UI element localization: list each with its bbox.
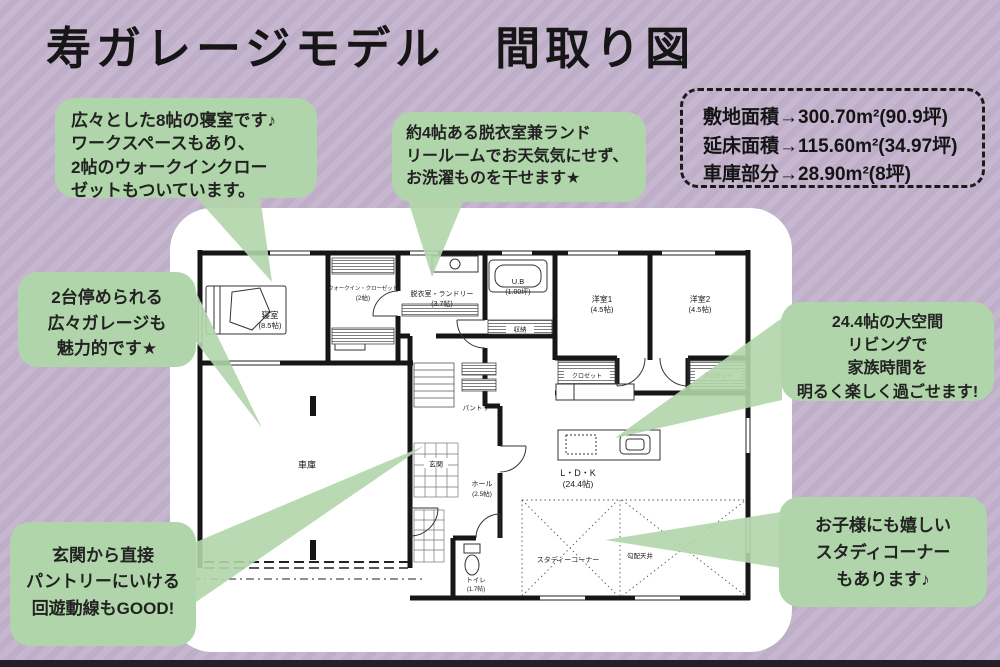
- label-closet-left: クロゼット: [572, 372, 602, 380]
- label-bedroom: 寝室: [261, 310, 279, 320]
- label-wic: ウォークイン・クローゼット: [328, 284, 398, 292]
- callout-line: スタディコーナー: [779, 539, 987, 566]
- callout-line: 2帖のウォークインクロー: [71, 156, 317, 179]
- label-bedroom-size: (8.5帖): [259, 320, 282, 330]
- garage-door-opening: [192, 562, 422, 579]
- page-title: 寿ガレージモデル 間取り図: [46, 12, 695, 77]
- callout-line: 回遊動線もGOOD!: [10, 596, 196, 622]
- callout-line: もあります♪: [779, 566, 987, 593]
- bottom-dark-strip: [0, 660, 1000, 667]
- study-callout: お子様にも嬉しい スタディコーナー もあります♪: [779, 497, 987, 607]
- floorplan-panel: 寝室 (8.5帖) ウォークイン・クローゼット (2帖) 脱衣室・ランドリー (…: [170, 208, 792, 652]
- label-toilet-size: (1.7帖): [467, 585, 485, 593]
- label-room1: 洋室1: [592, 294, 613, 304]
- callout-line: リールームでお天気気にせず、: [406, 146, 646, 169]
- bedroom-callout: 広々とした8帖の寝室です♪ ワークスペースもあり、 2帖のウォークインクロー ゼ…: [55, 98, 317, 198]
- callout-line: 明るく楽しく過ごせます!: [781, 381, 994, 404]
- area-info-box: 敷地面積→300.70m²(90.9坪) 延床面積→115.60m²(34.97…: [680, 88, 985, 188]
- garage-area: 車庫部分→28.90m²(8坪): [703, 161, 982, 190]
- label-room1-size: (4.5帖): [591, 304, 614, 314]
- label-laundry: 脱衣室・ランドリー: [411, 289, 474, 298]
- callout-line: 約4帖ある脱衣室兼ランド: [406, 123, 646, 146]
- callout-line: 2台停められる: [18, 285, 196, 311]
- living-callout: 24.4帖の大空間 リビングで 家族時間を 明るく楽しく過ごせます!: [781, 302, 994, 401]
- callout-line: 魅力的です★: [18, 336, 196, 362]
- entry-tiles: [414, 443, 458, 497]
- label-hall-size: (2.5帖): [472, 489, 492, 498]
- stairs: [414, 363, 454, 407]
- flyer-root: { "title": "寿ガレージモデル 間取り図", "area_info":…: [0, 0, 1000, 667]
- label-ldk-size: (24.4帖): [563, 479, 594, 489]
- label-storage: 収納: [514, 325, 527, 334]
- callout-line: リビングで: [781, 334, 994, 357]
- sloped-ceiling-lines: [522, 500, 746, 596]
- garage-post: [310, 396, 316, 416]
- label-wic-size: (2帖): [356, 293, 370, 302]
- callout-line: お洗濯ものを干せます★: [406, 168, 646, 191]
- label-ldk: L・D・K: [560, 468, 596, 478]
- laundry-callout: 約4帖ある脱衣室兼ランド リールームでお天気気にせず、 お洗濯ものを干せます★: [392, 112, 646, 202]
- floorplan-drawing: 寝室 (8.5帖) ウォークイン・クローゼット (2帖) 脱衣室・ランドリー (…: [170, 208, 792, 652]
- callout-line: 広々とした8帖の寝室です♪: [71, 109, 317, 132]
- label-bath: U.B: [512, 277, 525, 286]
- site-area: 敷地面積→300.70m²(90.9坪): [703, 104, 982, 133]
- toilet-fixture: [464, 544, 480, 575]
- floor-area: 延床面積→115.60m²(34.97坪): [703, 133, 982, 162]
- pantry-callout: 玄関から直接 パントリーにいける 回遊動線もGOOD!: [10, 522, 196, 646]
- label-garage: 車庫: [298, 459, 316, 470]
- bathtub: [489, 260, 547, 292]
- callout-line: お子様にも嬉しい: [779, 512, 987, 539]
- label-entrance: 玄関: [429, 460, 443, 469]
- label-ceiling: 勾配天井: [627, 551, 654, 560]
- label-hall: ホール: [472, 480, 493, 488]
- label-pantry: パントリー: [463, 404, 496, 412]
- callout-line: 24.4帖の大空間: [781, 311, 994, 334]
- callout-line: 広々ガレージも: [18, 311, 196, 337]
- callout-line: 玄関から直接: [10, 543, 196, 569]
- garage-post: [310, 540, 316, 560]
- label-study: スタディーコーナー: [537, 555, 600, 564]
- callout-line: ゼットもついています。: [71, 179, 317, 202]
- callout-line: パントリーにいける: [10, 569, 196, 595]
- label-laundry-size: (3.7帖): [431, 299, 452, 308]
- garage-callout: 2台停められる 広々ガレージも 魅力的です★: [18, 272, 196, 367]
- label-toilet: トイレ: [466, 577, 486, 584]
- label-room2-size: (4.5帖): [689, 304, 712, 314]
- label-closet-right: クロゼット: [703, 372, 733, 380]
- pantry-shelves: [462, 363, 496, 391]
- callout-line: 家族時間を: [781, 357, 994, 380]
- callout-line: ワークスペースもあり、: [71, 132, 317, 155]
- label-room2: 洋室2: [690, 294, 711, 304]
- label-bath-size: (1.00坪): [505, 288, 530, 296]
- porch-tiles: [414, 510, 444, 562]
